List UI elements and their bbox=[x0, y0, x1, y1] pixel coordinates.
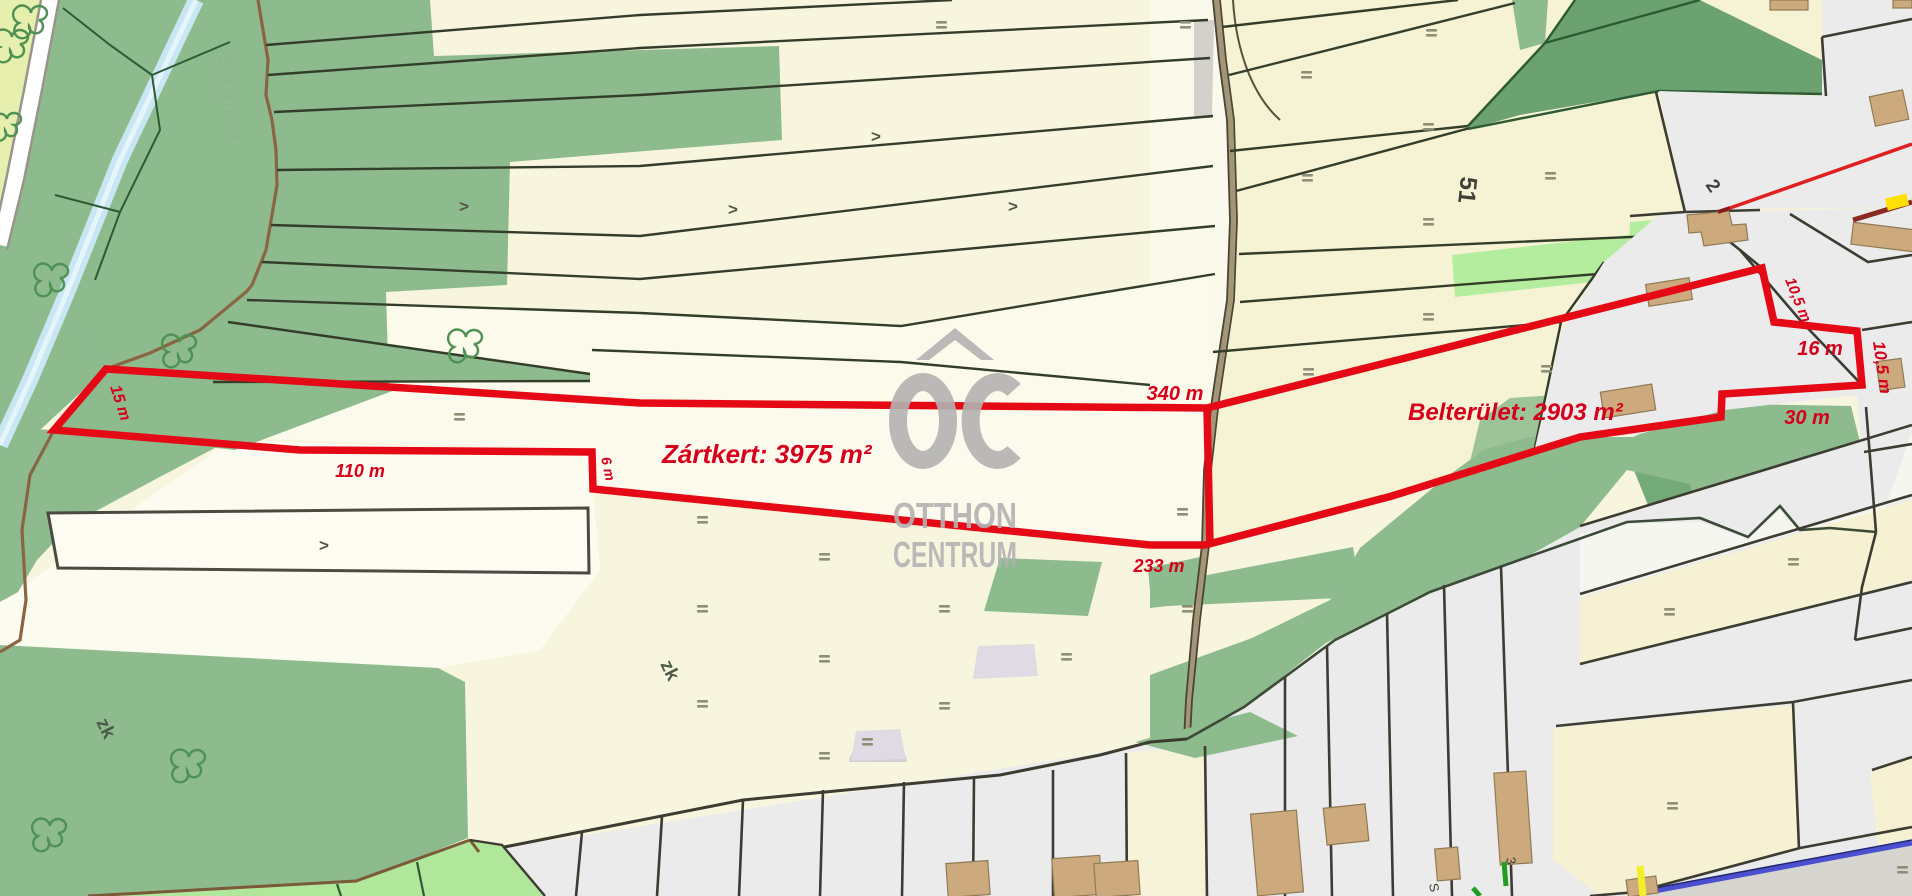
svg-text:Belterület: 2903 m²: Belterület: 2903 m² bbox=[1408, 399, 1624, 426]
svg-text:233 m: 233 m bbox=[1132, 556, 1184, 576]
svg-text:16 m: 16 m bbox=[1797, 338, 1843, 360]
svg-text:30 m: 30 m bbox=[1784, 407, 1830, 429]
svg-text:>: > bbox=[319, 536, 329, 555]
svg-text:340 m: 340 m bbox=[1147, 383, 1204, 405]
svg-text:OTTHON: OTTHON bbox=[893, 495, 1017, 536]
svg-text:>: > bbox=[1008, 197, 1018, 216]
svg-text:>: > bbox=[459, 197, 469, 216]
svg-text:CENTRUM: CENTRUM bbox=[893, 534, 1017, 575]
svg-text:110 m: 110 m bbox=[335, 461, 385, 481]
svg-text:>: > bbox=[728, 200, 738, 219]
svg-text:Zártkert: 3975 m²: Zártkert: 3975 m² bbox=[661, 439, 873, 469]
svg-text:51: 51 bbox=[1452, 175, 1482, 204]
svg-text:>: > bbox=[871, 127, 881, 146]
